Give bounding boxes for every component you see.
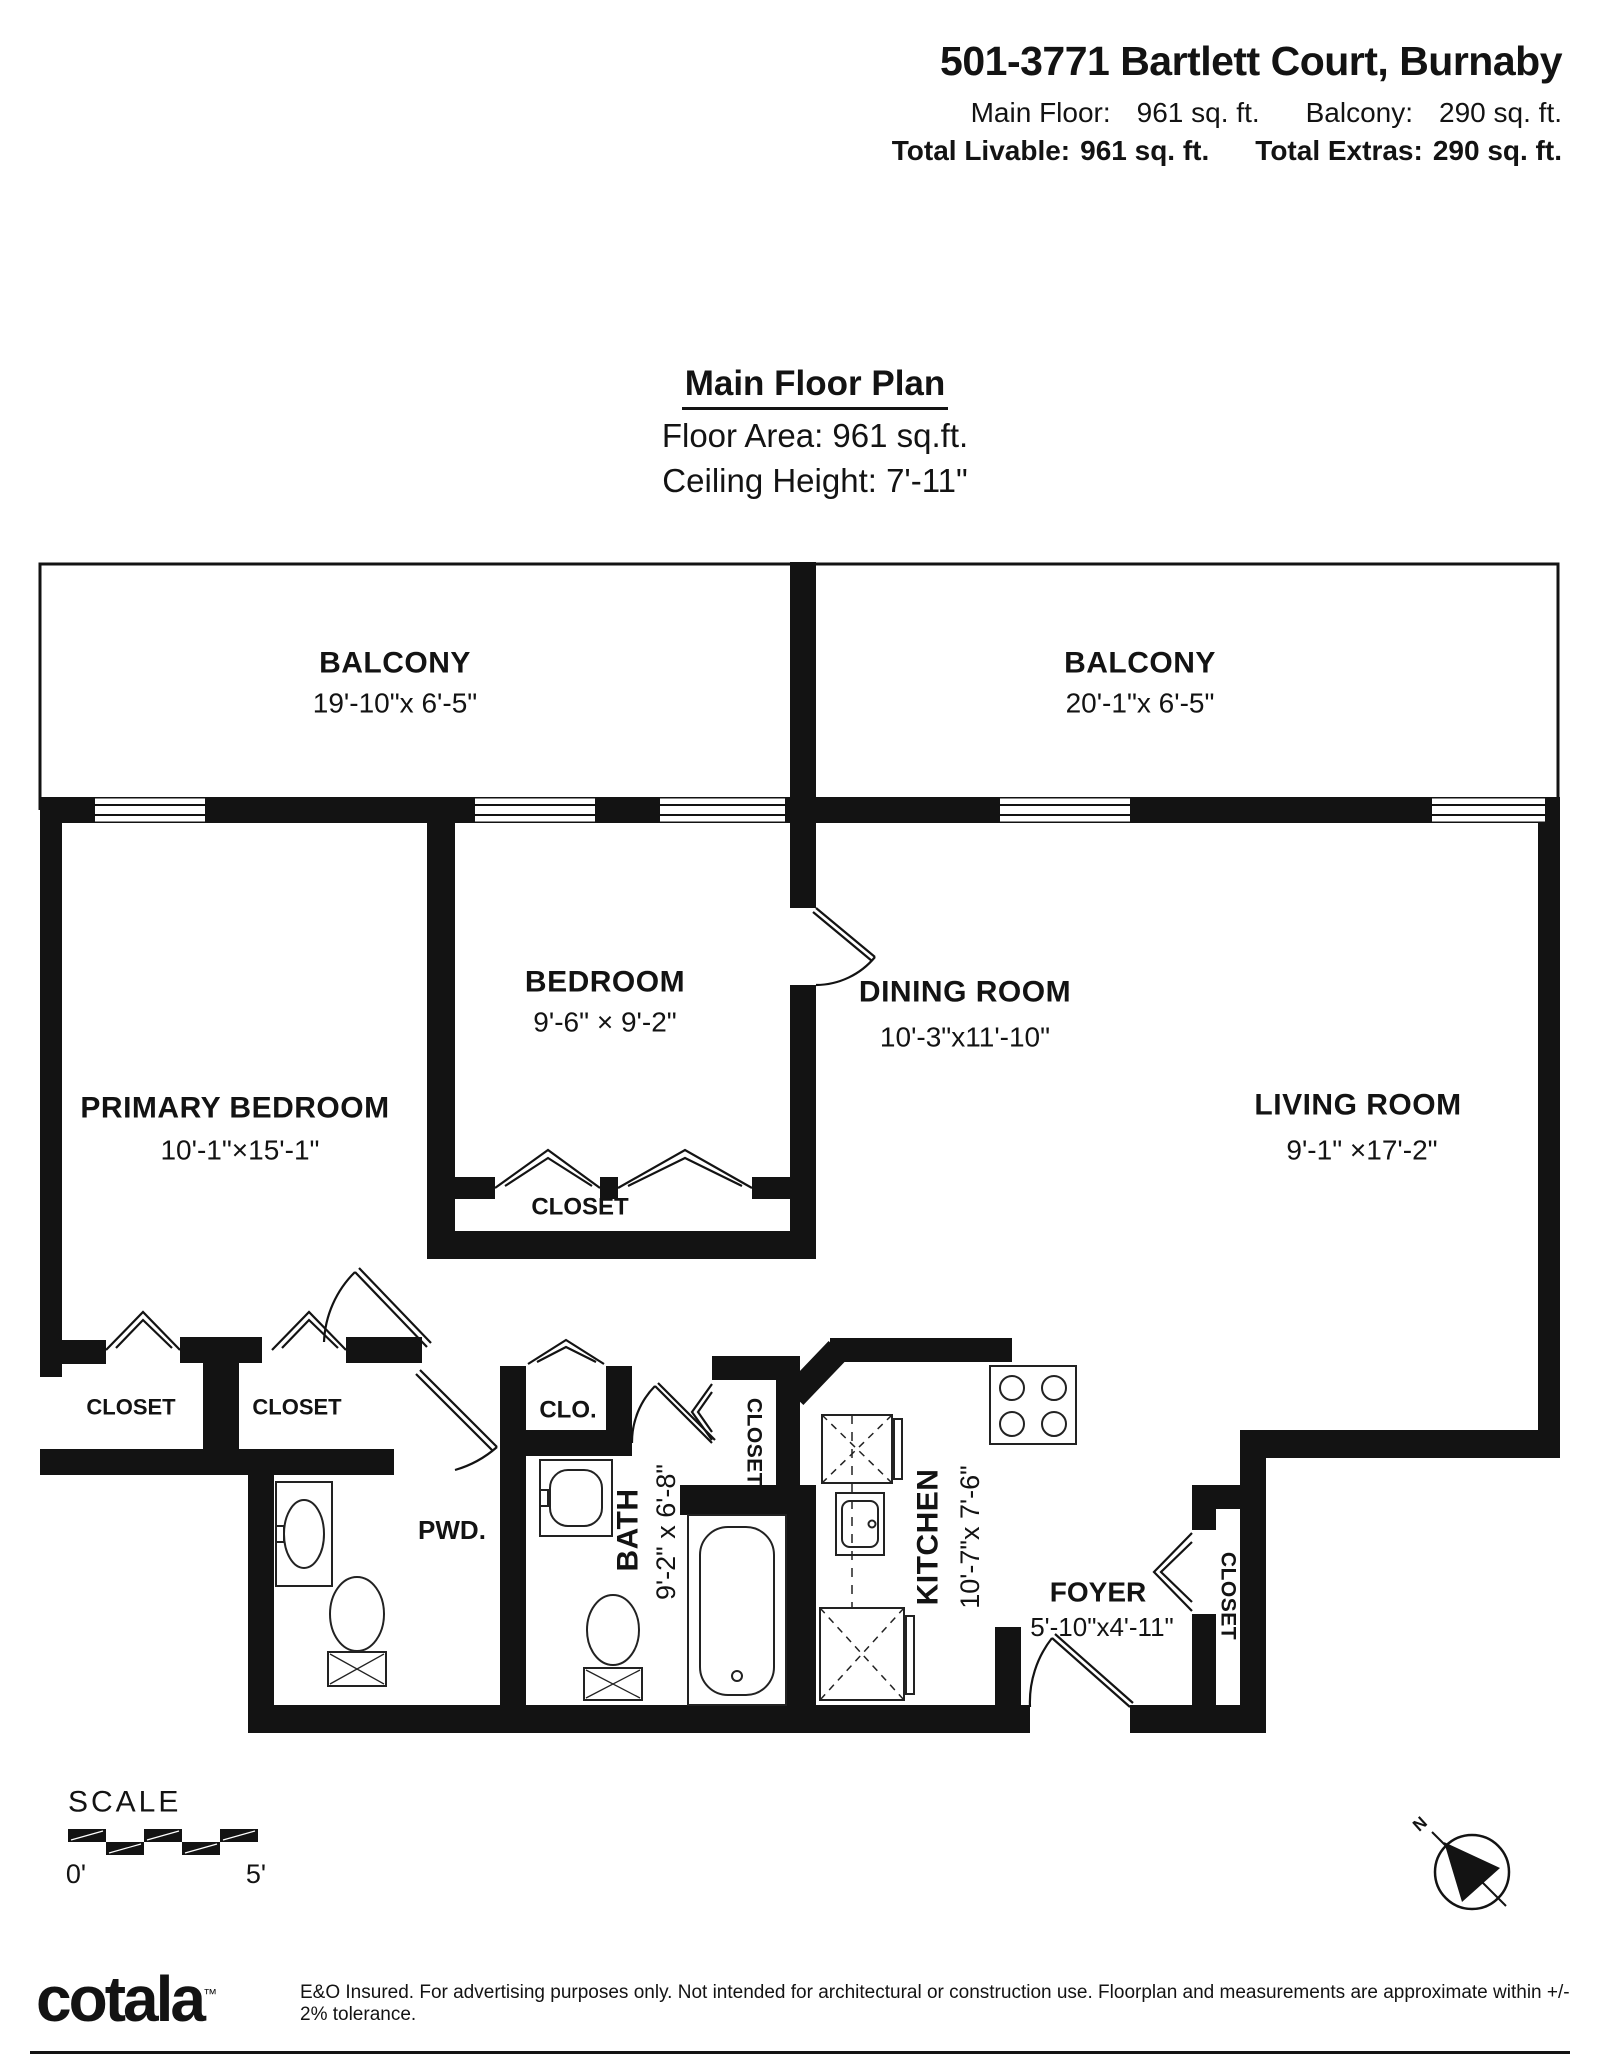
door-primary — [324, 1268, 431, 1347]
floorplan-drawing: BALCONY 19'-10"x 6'-5" BALCONY 20'-1"x 6… — [0, 540, 1600, 1940]
brand-logo: cotala™ — [36, 1962, 217, 2036]
window — [475, 799, 595, 822]
door-hall — [416, 1370, 497, 1470]
main-floor-value: 961 sq. ft. — [1137, 97, 1260, 129]
closet-left-1-label: CLOSET — [86, 1395, 176, 1420]
pwd-label: PWD. — [418, 1515, 486, 1545]
plan-floor-area: Floor Area: 961 sq.ft. — [415, 417, 1215, 455]
scale-label: SCALE — [68, 1786, 181, 1819]
primary-bedroom-dims: 10'-1"×15'-1" — [160, 1135, 319, 1166]
trademark-symbol: ™ — [203, 1986, 217, 2002]
bath-sink — [540, 1460, 612, 1536]
bathtub — [688, 1515, 786, 1705]
foyer-dims: 5'-10"x4'-11" — [1030, 1612, 1174, 1642]
window — [95, 799, 205, 822]
pwd-toilet — [328, 1577, 386, 1686]
total-livable-value: 961 sq. ft. — [1080, 135, 1209, 167]
north-label: N — [1409, 1813, 1431, 1835]
primary-bedroom-label: PRIMARY BEDROOM — [80, 1092, 389, 1125]
area-summary-row: Main Floor: 961 sq. ft. Balcony: 290 sq.… — [892, 97, 1562, 129]
balcony-left-label: BALCONY — [319, 647, 471, 680]
foyer-label: FOYER — [1050, 1577, 1146, 1608]
angled-wall — [794, 1350, 838, 1396]
totals-row: Total Livable: 961 sq. ft. Total Extras:… — [892, 135, 1562, 167]
bath-dims: 9'-2" x 6'-8" — [651, 1464, 681, 1600]
pwd-sink — [276, 1482, 332, 1586]
door-bedroom — [813, 908, 875, 985]
main-floor-label: Main Floor: — [971, 97, 1111, 129]
total-livable-label: Total Livable: — [892, 135, 1070, 167]
kitchen-fridge — [822, 1415, 902, 1483]
scale-start: 0' — [66, 1859, 86, 1889]
window — [1000, 799, 1130, 822]
kitchen-label: KITCHEN — [912, 1469, 945, 1606]
page-title: 501-3771 Bartlett Court, Burnaby — [892, 38, 1562, 85]
plan-title: Main Floor Plan — [682, 364, 949, 410]
bifold-door — [272, 1312, 346, 1350]
balcony-left-dims: 19'-10"x 6'-5" — [313, 688, 477, 719]
kitchen-cabinet — [820, 1608, 914, 1700]
kitchen-sink — [836, 1493, 884, 1555]
foyer-closet-label: CLOSET — [1217, 1552, 1240, 1640]
dining-label: DINING ROOM — [859, 976, 1071, 1009]
brand-text: cotala — [36, 1963, 203, 2035]
scale-bar: SCALE 0' 5' — [66, 1786, 266, 1890]
header: 501-3771 Bartlett Court, Burnaby Main Fl… — [892, 38, 1562, 167]
bifold-door — [495, 1150, 600, 1188]
total-extras-label: Total Extras: — [1255, 135, 1423, 167]
closet-left-2-label: CLOSET — [252, 1395, 342, 1420]
bath-label: BATH — [612, 1488, 645, 1571]
total-extras-value: 290 sq. ft. — [1433, 135, 1562, 167]
scale-end: 5' — [246, 1859, 266, 1889]
kitchen-dims: 10'-7"x 7'-6" — [955, 1465, 985, 1609]
closet-door — [1154, 1533, 1192, 1611]
kitchen-stove — [990, 1366, 1076, 1444]
bottom-rule — [30, 2051, 1570, 2054]
bath-toilet — [584, 1595, 642, 1700]
floorplan-page: 501-3771 Bartlett Court, Burnaby Main Fl… — [0, 0, 1600, 2071]
balcony-right-dims: 20'-1"x 6'-5" — [1066, 688, 1215, 719]
door-entry — [1030, 1634, 1133, 1707]
balcony-right-label: BALCONY — [1064, 647, 1216, 680]
balcony-label: Balcony: — [1306, 97, 1413, 129]
window — [1432, 799, 1545, 822]
hall-closet-label: CLOSET — [743, 1398, 766, 1486]
door-bath — [632, 1383, 715, 1443]
bifold-door — [528, 1340, 604, 1364]
plan-ceiling-height: Ceiling Height: 7'-11" — [415, 462, 1215, 500]
living-label: LIVING ROOM — [1254, 1089, 1461, 1122]
dining-dims: 10'-3"x11'-10" — [880, 1022, 1050, 1053]
bifold-door — [106, 1312, 180, 1350]
bifold-door — [618, 1150, 752, 1188]
living-dims: 9'-1" ×17'-2" — [1286, 1135, 1437, 1166]
bedroom-dims: 9'-6" × 9'-2" — [533, 1007, 676, 1038]
plan-title-block: Main Floor Plan Floor Area: 961 sq.ft. C… — [415, 364, 1215, 500]
disclaimer-text: E&O Insured. For advertising purposes on… — [300, 1982, 1580, 2026]
balcony-value: 290 sq. ft. — [1439, 97, 1562, 129]
north-arrow-icon: N — [1409, 1813, 1509, 1909]
bedroom-label: BEDROOM — [525, 966, 685, 999]
clo-label: CLO. — [539, 1397, 596, 1424]
bedroom-closet-label: CLOSET — [531, 1194, 629, 1221]
window — [660, 799, 785, 822]
